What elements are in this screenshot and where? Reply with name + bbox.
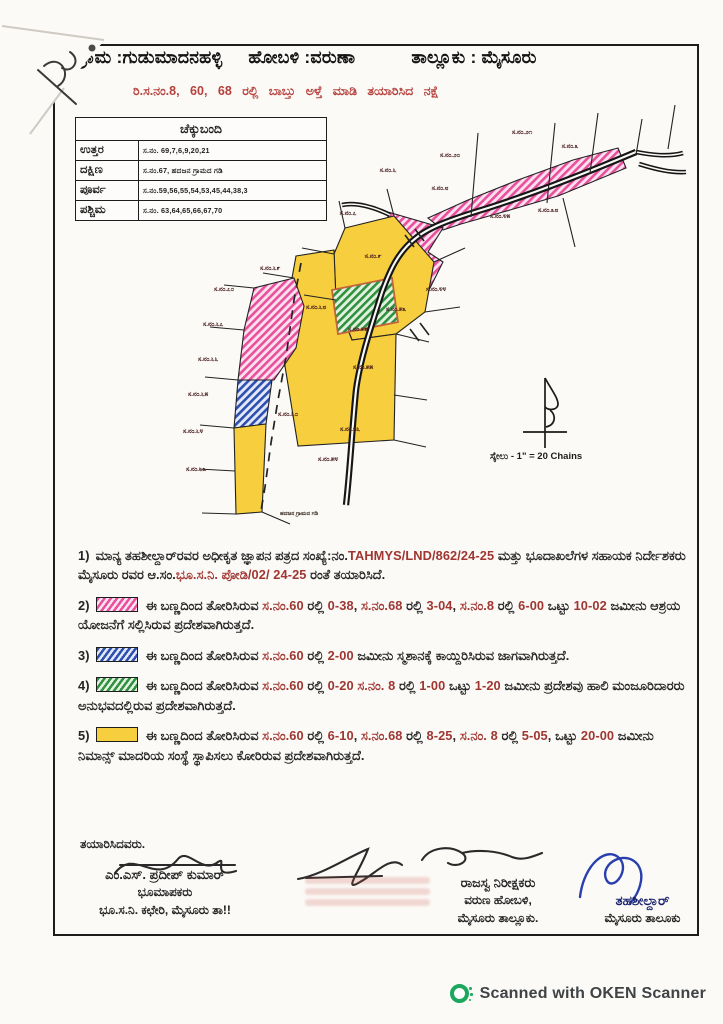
note-text: ಈ ಬಣ್ಣದಿಂದ ತೋರಿಸಿರುವ — [146, 728, 263, 743]
note-highlight-value: ಸ.ನಂ.60 — [262, 648, 304, 663]
table-row: ಪಶ್ಚಿಮ ಸ.ನಂ. 63,64,65,66,67,70 — [76, 201, 327, 221]
survey-number-label: ಸ.ನಂ.೭೦ — [214, 286, 235, 293]
note-highlight-value: ಭೂ.ಸ.ನಿ. ಪೋಡಿ/02/ 24-25 — [176, 567, 307, 582]
scanner-footer-text: Scanned with OKEN Scanner — [480, 985, 706, 1003]
survey-number-label: ಸ.ನಂ.೬೪ — [183, 428, 204, 435]
signature-area: ತಯಾರಿಸಿದವರು. ಎಂ.ಎಸ್. ಪ್ರದೀಪ್ ಕುಮಾರ್ ಭೂಮಾ… — [60, 835, 695, 935]
note-item: 2)ಈ ಬಣ್ಣದಿಂದ ತೋರಿಸಿರುವ ಸ.ನಂ.60 ರಲ್ಲಿ 0-3… — [78, 596, 690, 635]
note-number: 4) — [78, 678, 90, 693]
survey-number-label: ಸ.ನಂ.೫೯ — [348, 326, 369, 333]
note-item: 3)ಈ ಬಣ್ಣದಿಂದ ತೋರಿಸಿರುವ ಸ.ನಂ.60 ರಲ್ಲಿ 2-0… — [78, 646, 690, 665]
parcel-yellow-bottom-strip — [234, 424, 266, 514]
torn-corner-artifact — [0, 18, 140, 158]
signatory-revenue-inspector: ರಾಜಸ್ವ ನಿರೀಕ್ಷಕರು ವರುಣ ಹೋಬಳಿ, ಮೈಸೂರು ತಾಲ… — [418, 875, 578, 926]
note-highlight-value: 1-00 — [419, 678, 445, 693]
survey-number-label: ಸ.ನಂ.೫೩ — [386, 306, 407, 313]
legend-swatch-green — [96, 677, 138, 692]
note-text: , ಒಟ್ಟು — [548, 728, 581, 743]
note-number: 1) — [78, 548, 90, 563]
note-highlight-value: 0-20 — [328, 678, 354, 693]
note-highlight-value: ಸ.ನಂ.60 — [262, 598, 304, 613]
survey-number-label: ಸ.ನಂ.೯ — [365, 253, 382, 260]
note-text: ಈ ಬಣ್ಣದಿಂದ ತೋರಿಸಿರುವ — [146, 598, 263, 613]
note-text: ರಲ್ಲಿ — [403, 728, 427, 743]
note-item: 5)ಈ ಬಣ್ಣದಿಂದ ತೋರಿಸಿರುವ ಸ.ನಂ.60 ರಲ್ಲಿ 6-1… — [78, 726, 690, 765]
survey-number-label: ಸ.ನಂ.೬೮ — [306, 304, 327, 311]
survey-number-label: ಸ.ನಂ.೪೪ — [426, 286, 447, 293]
note-highlight-value: 6-10 — [328, 728, 354, 743]
survey-number-label: ಸ.ನಂ.೬೩ — [186, 466, 207, 473]
note-number: 5) — [78, 728, 90, 743]
note-text: , — [354, 598, 361, 613]
note-text: ಈ ಬಣ್ಣದಿಂದ ತೋರಿಸಿರುವ — [146, 648, 263, 663]
note-highlight-value: 2-00 — [328, 648, 354, 663]
surveyor-name: ಎಂ.ಎಸ್. ಪ್ರದೀಪ್ ಕುಮಾರ್ — [60, 867, 270, 883]
scale-label: ಸ್ಕೇಲು - 1" = 20 Chains — [490, 451, 582, 463]
revenue-inspector-taluk: ಮೈಸೂರು ತಾಲ್ಲೂಕು. — [418, 911, 578, 926]
note-highlight-value: TAHMYS/LND/862/24-25 — [348, 548, 494, 563]
revenue-inspector-title: ರಾಜಸ್ವ ನಿರೀಕ್ಷಕರು — [418, 875, 578, 891]
boundary-value-east: ಸ.ನಂ.59,56,55,54,53,45,44,38,3 — [139, 181, 327, 201]
boundary-value-north: ಸ.ನಂ. 69,7,6,9,20,21 — [139, 141, 327, 161]
note-text: ಜಮೀನು ಸ್ಮಶಾನಕ್ಕೆ ಕಾಯ್ದಿರಿಸಿರುವ ಜಾಗವಾಗಿರು… — [354, 648, 570, 663]
note-highlight-value: ಸ.ನಂ. 8 — [460, 728, 498, 743]
oken-scanner-icon — [450, 984, 470, 1004]
note-highlight-value: 0-38 — [328, 598, 354, 613]
survey-number-label: ಸ.ನಂ.೪೫ — [490, 213, 511, 220]
note-highlight-value: 6-00 — [518, 598, 544, 613]
note-text: ರಲ್ಲಿ — [304, 678, 328, 693]
table-row: ಪೂರ್ವ ಸ.ನಂ.59,56,55,54,53,45,44,38,3 — [76, 181, 327, 201]
note-number: 3) — [78, 648, 90, 663]
legend-notes: 1)ಮಾನ್ಯ ತಹಶೀಲ್ದಾರ್‌ರವರ ಅಧೀಕೃತ ಜ್ಞಾಪನ ಪತ್… — [78, 546, 690, 776]
signature-ink-inspector — [422, 848, 542, 865]
note-text: ರಲ್ಲಿ — [498, 728, 522, 743]
note-text: , — [453, 598, 460, 613]
note-text: ರಂತೆ ತಯಾರಿಸಿದೆ. — [307, 567, 386, 582]
hobli-name: ಹೋಬಳಿ :ವರುಣಾ — [248, 47, 355, 68]
survey-number-label: ಸ.ನಂ.೬ — [380, 167, 397, 174]
note-text: , — [354, 728, 361, 743]
faint-stamp-mark — [305, 873, 430, 919]
note-highlight-value: 1-20 — [475, 678, 501, 693]
note-highlight-value: 3-04 — [427, 598, 453, 613]
note-text: ಒಟ್ಟು — [544, 598, 573, 613]
boundary-value-west: ಸ.ನಂ. 63,64,65,66,67,70 — [139, 201, 327, 221]
note-highlight-value: ಸ.ನಂ.8 — [460, 598, 494, 613]
survey-number-label: ಸ.ನಂ.೫೬ — [340, 426, 361, 433]
village-boundary-note: ಹದಜನ ಗ್ರಾಮದ ಗಡಿ — [280, 511, 319, 517]
survey-number-label: ಸ.ನಂ.೬೦ — [278, 411, 299, 418]
prepared-by-label: ತಯಾರಿಸಿದವರು. — [80, 837, 145, 852]
note-highlight-value: ಸ.ನಂ.68 — [361, 728, 403, 743]
note-text: ಒಟ್ಟು — [445, 678, 474, 693]
note-highlight-value: ಸ.ನಂ.68 — [361, 598, 403, 613]
note-text: ರಲ್ಲಿ — [494, 598, 518, 613]
note-highlight-value: ಸ.ನಂ.60 — [262, 728, 304, 743]
survey-number-label: ಸ.ನಂ.೭ — [340, 210, 357, 217]
survey-number-label: ಸ.ನಂ.೬೫ — [188, 391, 209, 398]
survey-number-label: ಸ.ನಂ.೨೧ — [512, 129, 533, 136]
survey-number-label: ಸ.ನಂ.೩ — [562, 143, 579, 150]
survey-number-label: ಸ.ನಂ.೫೫ — [353, 364, 374, 371]
note-text: ಮಾನ್ಯ ತಹಶೀಲ್ದಾರ್‌ರವರ ಅಧೀಕೃತ ಜ್ಞಾಪನ ಪತ್ರದ… — [96, 548, 348, 563]
legend-swatch-pink — [96, 597, 138, 612]
document-header: ಗ್ರಾಮ :ಗುಡುಮಾದನಹಳ್ಳಿ ಹೋಬಳಿ :ವರುಣಾ ತಾಲ್ಲೂ… — [78, 47, 678, 68]
tahsildar-taluk: ಮೈಸೂರು ತಾಲೂಕು — [575, 911, 710, 926]
survey-number-label: ಸ.ನಂ.೨೦ — [440, 152, 461, 159]
note-text: ರಲ್ಲಿ — [304, 648, 328, 663]
note-text: , — [453, 728, 460, 743]
note-highlight-value: 10-02 — [574, 598, 607, 613]
note-number: 2) — [78, 598, 90, 613]
survey-number-label: ಸ.ನಂ.೮ — [432, 185, 449, 192]
boundary-value-south: ಸ.ನಂ.67, ಹದಜನ ಗ್ರಾಮದ ಗಡಿ — [139, 161, 327, 181]
surveyor-role: ಭೂಮಾಪಕರು — [60, 885, 270, 900]
table-row: ದಕ್ಷಿಣ ಸ.ನಂ.67, ಹದಜನ ಗ್ರಾಮದ ಗಡಿ — [76, 161, 327, 181]
revenue-inspector-hobli: ವರುಣ ಹೋಬಳಿ, — [418, 893, 578, 908]
scanned-page: ಗ್ರಾಮ :ಗುಡುಮಾದನಹಳ್ಳಿ ಹೋಬಳಿ :ವರುಣಾ ತಾಲ್ಲೂ… — [0, 0, 723, 1024]
tahsildar-title: ತಹಶೀಲ್ದಾರ್ — [575, 893, 710, 909]
legend-swatch-yellow — [96, 727, 138, 742]
parcel-blue-smashana — [234, 380, 272, 428]
note-highlight-value: ಸ.ನಂ.60 — [262, 678, 304, 693]
note-text: ರಲ್ಲಿ — [304, 728, 328, 743]
taluk-name: ತಾಲ್ಲೂಕು : ಮೈಸೂರು — [411, 47, 536, 68]
boundary-label-south: ದಕ್ಷಿಣ — [76, 161, 139, 181]
north-arrow-icon — [523, 378, 567, 448]
note-item: 1)ಮಾನ್ಯ ತಹಶೀಲ್ದಾರ್‌ರವರ ಅಧೀಕೃತ ಜ್ಞಾಪನ ಪತ್… — [78, 546, 690, 585]
signatory-surveyor: ಎಂ.ಎಸ್. ಪ್ರದೀಪ್ ಕುಮಾರ್ ಭೂಮಾಪಕರು ಭೂ.ಸ.ನಿ.… — [60, 867, 270, 918]
note-highlight-value: 8-25 — [427, 728, 453, 743]
scanner-footer: Scanned with OKEN Scanner — [0, 984, 706, 1004]
signatory-tahsildar: ತಹಶೀಲ್ದಾರ್ ಮೈಸೂರು ತಾಲೂಕು — [575, 893, 710, 926]
note-text: ರಲ್ಲಿ — [403, 598, 427, 613]
legend-swatch-blue — [96, 647, 138, 662]
note-text: ರಲ್ಲಿ — [304, 598, 328, 613]
note-item: 4)ಈ ಬಣ್ಣದಿಂದ ತೋರಿಸಿರುವ ಸ.ನಂ.60 ರಲ್ಲಿ 0-2… — [78, 676, 690, 715]
surveyor-office: ಭೂ.ಸ.ನಿ. ಕಛೇರಿ, ಮೈಸೂರು ತಾ!! — [60, 903, 270, 918]
note-highlight-value: ಸ.ನಂ. 8 — [357, 678, 395, 693]
survey-number-label: ಸ.ನಂ.೬೯ — [260, 265, 281, 272]
note-highlight-value: 5-05 — [522, 728, 548, 743]
boundary-label-east: ಪೂರ್ವ — [76, 181, 139, 201]
note-highlight-value: 20-00 — [581, 728, 614, 743]
survey-number-label: ಸ.ನಂ.೬೭ — [203, 321, 224, 328]
boundary-label-west: ಪಶ್ಚಿಮ — [76, 201, 139, 221]
survey-number-label: ಸ.ನಂ.೫೪ — [318, 456, 339, 463]
note-text: ರಲ್ಲಿ — [395, 678, 419, 693]
note-text: ಈ ಬಣ್ಣದಿಂದ ತೋರಿಸಿರುವ — [146, 678, 263, 693]
survey-number-label: ಸ.ನಂ.೬೬ — [198, 356, 219, 363]
survey-number-label: ಸ.ನಂ.೩೮ — [538, 207, 559, 214]
